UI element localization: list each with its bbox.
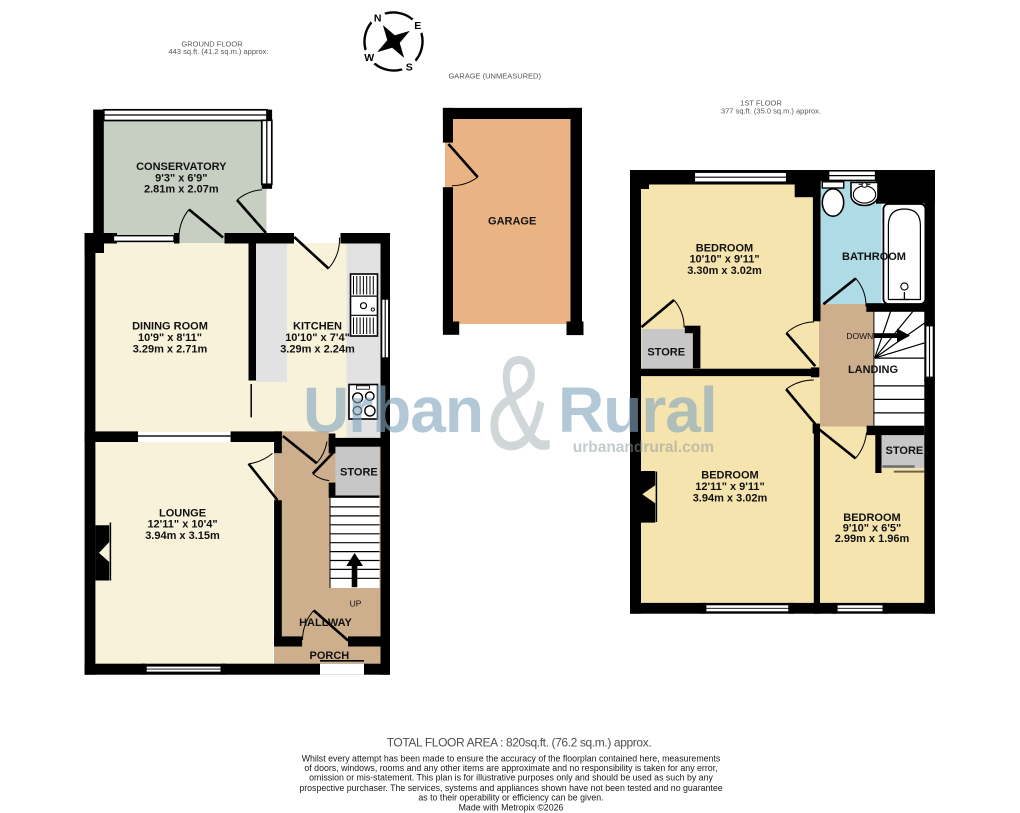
svg-text:10'10" x 9'11": 10'10" x 9'11" xyxy=(689,254,759,266)
svg-text:E: E xyxy=(414,20,421,32)
svg-text:STORE: STORE xyxy=(886,445,924,457)
svg-text:Made with Metropix ©2026: Made with Metropix ©2026 xyxy=(459,802,564,812)
svg-text:PORCH: PORCH xyxy=(310,650,350,662)
svg-text:&: & xyxy=(487,327,551,478)
svg-text:UP: UP xyxy=(350,598,362,608)
svg-text:as to their operability or eff: as to their operability or efficiency ca… xyxy=(418,793,603,803)
svg-text:STORE: STORE xyxy=(340,466,378,478)
svg-text:CONSERVATORY: CONSERVATORY xyxy=(136,161,227,173)
svg-text:BEDROOM: BEDROOM xyxy=(696,242,753,254)
svg-text:3.30m x 3.02m: 3.30m x 3.02m xyxy=(687,265,762,277)
svg-text:STORE: STORE xyxy=(647,346,685,358)
svg-text:377 sq.ft. (35.0 sq.m.) approx: 377 sq.ft. (35.0 sq.m.) approx. xyxy=(721,107,821,116)
svg-text:KITCHEN: KITCHEN xyxy=(293,321,342,333)
svg-text:BATHROOM: BATHROOM xyxy=(842,251,906,263)
svg-text:W: W xyxy=(364,52,374,64)
svg-text:12'11" x 9'11": 12'11" x 9'11" xyxy=(695,481,765,493)
svg-text:LOUNGE: LOUNGE xyxy=(159,507,206,519)
svg-text:3.29m x 2.24m: 3.29m x 2.24m xyxy=(280,343,355,355)
svg-text:3.94m x 3.15m: 3.94m x 3.15m xyxy=(145,530,220,542)
svg-text:GARAGE: GARAGE xyxy=(488,215,536,227)
svg-text:10'9" x 8'11": 10'9" x 8'11" xyxy=(138,332,202,344)
svg-text:3.29m x 2.71m: 3.29m x 2.71m xyxy=(133,343,208,355)
svg-text:9'3" x 6'9": 9'3" x 6'9" xyxy=(155,172,207,184)
svg-text:omission or mis-statement. Thi: omission or mis-statement. This plan is … xyxy=(309,773,713,783)
svg-text:S: S xyxy=(406,61,413,73)
svg-text:GARAGE (UNMEASURED): GARAGE (UNMEASURED) xyxy=(448,71,541,80)
svg-text:10'10" x 7'4": 10'10" x 7'4" xyxy=(285,332,350,344)
svg-text:Urban: Urban xyxy=(303,374,483,446)
svg-text:TOTAL FLOOR AREA : 820sq.ft. (: TOTAL FLOOR AREA : 820sq.ft. (76.2 sq.m.… xyxy=(387,736,652,750)
svg-text:2.81m x 2.07m: 2.81m x 2.07m xyxy=(144,184,219,196)
svg-text:N: N xyxy=(374,13,382,25)
svg-text:of doors, windows, rooms and a: of doors, windows, rooms and any other i… xyxy=(304,763,717,773)
svg-text:DINING ROOM: DINING ROOM xyxy=(132,321,208,333)
svg-text:HALLWAY: HALLWAY xyxy=(299,617,352,629)
svg-text:Rural: Rural xyxy=(558,374,717,446)
svg-text:prospective purchaser. The ser: prospective purchaser. The services, sys… xyxy=(299,783,722,793)
svg-text:DOWN: DOWN xyxy=(846,331,873,341)
svg-text:12'11" x 10'4": 12'11" x 10'4" xyxy=(147,519,217,531)
svg-text:2.99m x 1.96m: 2.99m x 1.96m xyxy=(835,533,910,545)
svg-text:3.94m x 3.02m: 3.94m x 3.02m xyxy=(693,493,768,505)
svg-text:BEDROOM: BEDROOM xyxy=(701,470,758,482)
svg-text:443 sq.ft. (41.2 sq.m.) approx: 443 sq.ft. (41.2 sq.m.) approx. xyxy=(168,47,268,56)
svg-text:LANDING: LANDING xyxy=(848,364,898,376)
svg-text:Whilst every attempt has been: Whilst every attempt has been made to en… xyxy=(302,754,721,764)
svg-text:urbanandrural.com: urbanandrural.com xyxy=(573,439,714,456)
